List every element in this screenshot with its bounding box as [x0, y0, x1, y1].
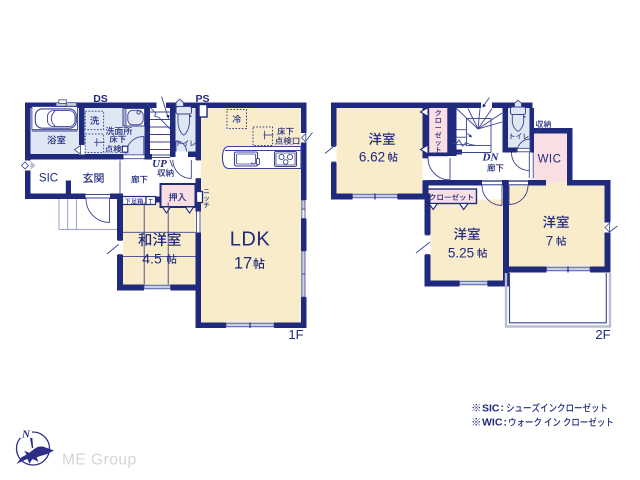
- svg-text:7: 7: [546, 234, 554, 249]
- svg-text:4.5: 4.5: [142, 251, 162, 267]
- svg-text:5.25: 5.25: [448, 246, 474, 261]
- svg-text::: :: [504, 416, 508, 428]
- svg-text:LDK: LDK: [230, 229, 271, 251]
- svg-text:SIC: SIC: [39, 173, 58, 185]
- svg-text:UP: UP: [152, 158, 167, 170]
- svg-text:N: N: [21, 429, 31, 441]
- svg-text:WIC: WIC: [482, 417, 503, 429]
- svg-text:DN: DN: [482, 152, 500, 164]
- svg-text:PS: PS: [195, 93, 209, 105]
- svg-text:6.62: 6.62: [359, 150, 385, 165]
- svg-text::: :: [501, 402, 505, 414]
- svg-text:DS: DS: [93, 93, 108, 105]
- svg-text:17: 17: [234, 255, 252, 273]
- svg-text:SIC: SIC: [482, 402, 500, 414]
- svg-text:ME Group: ME Group: [62, 452, 137, 469]
- svg-text:2F: 2F: [595, 327, 610, 342]
- svg-text:WIC: WIC: [538, 154, 562, 166]
- svg-text:1F: 1F: [288, 327, 303, 342]
- svg-text:T: T: [149, 199, 154, 206]
